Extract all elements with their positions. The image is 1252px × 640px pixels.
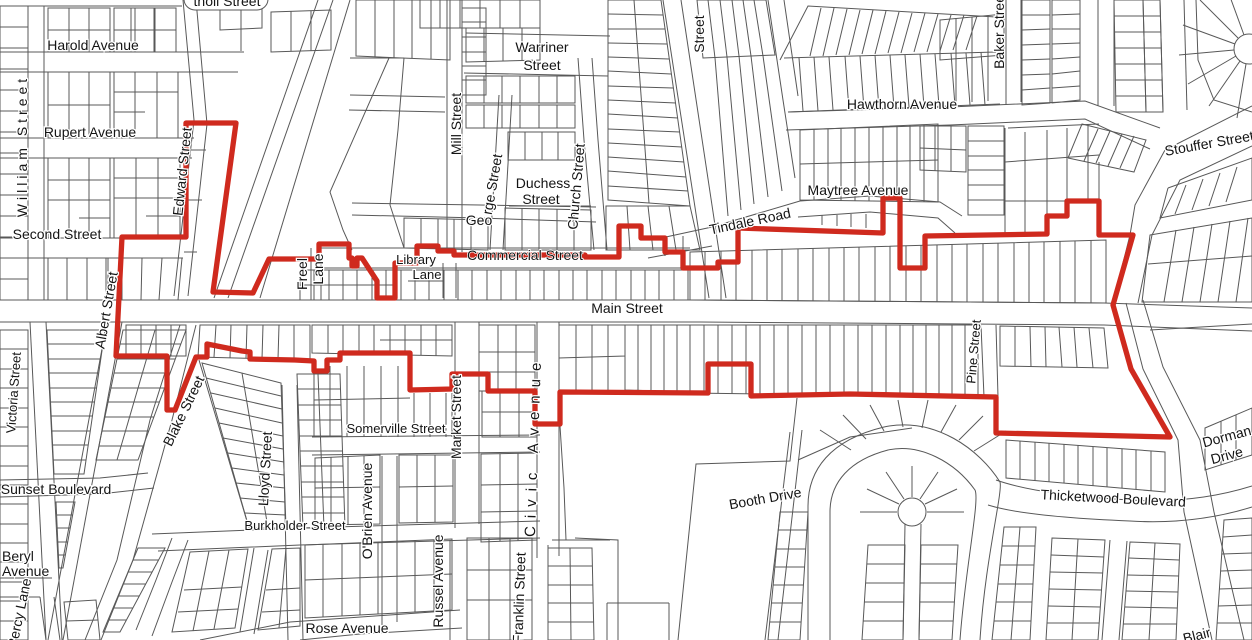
svg-text:Beryl: Beryl	[2, 548, 34, 564]
svg-text:Market Street: Market Street	[448, 375, 464, 459]
svg-text:Second Street: Second Street	[13, 226, 102, 242]
svg-text:Sunset Boulevard: Sunset Boulevard	[1, 481, 112, 497]
svg-text:Street: Street	[523, 57, 560, 73]
svg-text:Burkholder Street: Burkholder Street	[244, 518, 346, 533]
svg-text:Rose Avenue: Rose Avenue	[305, 620, 388, 636]
svg-text:Harold Avenue: Harold Avenue	[47, 37, 139, 53]
svg-text:Warriner: Warriner	[515, 39, 568, 55]
svg-text:Somerville Street: Somerville Street	[347, 421, 446, 436]
svg-text:Freel: Freel	[294, 258, 310, 290]
svg-text:Main Street: Main Street	[591, 300, 663, 316]
svg-text:tholl Street: tholl Street	[194, 0, 261, 9]
svg-text:Commercial Street: Commercial Street	[467, 247, 583, 263]
svg-text:Maytree Avenue: Maytree Avenue	[808, 182, 909, 198]
svg-text:Street: Street	[691, 15, 707, 52]
svg-text:Lane: Lane	[413, 267, 442, 282]
svg-text:Library: Library	[396, 252, 436, 267]
svg-text:Street: Street	[522, 191, 559, 207]
svg-text:Duchess: Duchess	[516, 175, 570, 191]
svg-text:Hawthorn Avenue: Hawthorn Avenue	[847, 96, 957, 112]
svg-text:Avenue: Avenue	[2, 563, 49, 579]
svg-text:William Street: William Street	[14, 75, 30, 217]
svg-text:Mill Street: Mill Street	[448, 93, 464, 155]
svg-text:Rupert Avenue: Rupert Avenue	[44, 124, 137, 140]
svg-text:Baker Street: Baker Street	[991, 0, 1007, 69]
svg-text:O'Brien Avenue: O'Brien Avenue	[359, 462, 375, 559]
svg-text:Franklin Street: Franklin Street	[509, 552, 528, 640]
svg-text:Lane: Lane	[310, 253, 326, 284]
svg-text:Russel Avenue: Russel Avenue	[430, 534, 446, 627]
